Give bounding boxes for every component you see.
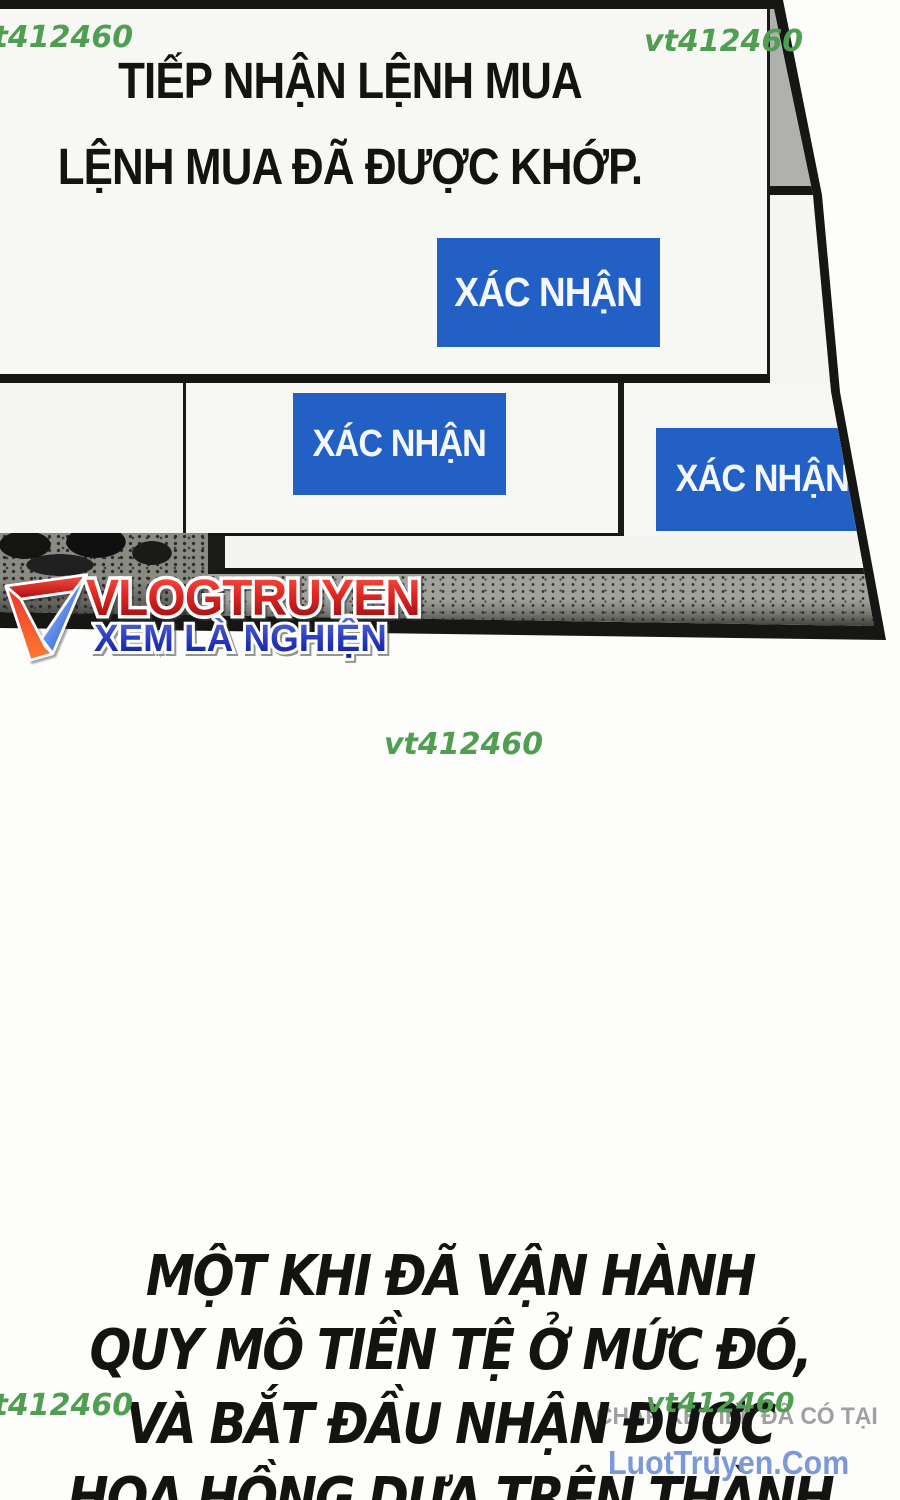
confirm-button-2-label: XÁC NHẬN [313, 423, 486, 466]
confirm-button-2[interactable]: XÁC NHẬN [293, 393, 506, 495]
narration-line: MỘT KHI ĐÃ VẬN HÀNH [54, 1240, 846, 1314]
vlogtruyen-triangle-icon [2, 570, 96, 666]
dialog-title-line2: LỆNH MUA ĐÃ ĐƯỢC KHỚP. [49, 137, 651, 196]
site-logo: VLOGTRUYEN VLOGTRUYEN XEM LÀ NGHIỆN XEM … [2, 566, 432, 670]
confirm-button-1-label: XÁC NHẬN [455, 269, 643, 316]
panel-background: TIẾP NHẬN LỆNH MUA LỆNH MUA ĐÃ ĐƯỢC KHỚP… [0, 0, 900, 660]
narration-line: QUY MÔ TIỀN TỆ Ở MỨC ĐÓ, [54, 1314, 846, 1388]
watermark-bottom-right: vt412460 [646, 1386, 795, 1419]
dialog-popup-front: TIẾP NHẬN LỆNH MUA LỆNH MUA ĐÃ ĐƯỢC KHỚP… [0, 9, 770, 383]
gray-wedge-edge [768, 186, 818, 195]
site-logo-tagline: XEM LÀ NGHIỆN XEM LÀ NGHIỆN [94, 618, 387, 661]
watermark-top-left: vt412460 [0, 20, 133, 55]
comic-panel: TIẾP NHẬN LỆNH MUA LỆNH MUA ĐÃ ĐƯỢC KHỚP… [0, 0, 900, 660]
confirm-button-3[interactable]: XÁC NHẬN [656, 428, 869, 531]
dialog-title-line1: TIẾP NHẬN LỆNH MUA [49, 51, 651, 110]
watermark-middle: vt412460 [384, 727, 543, 762]
confirm-button-1[interactable]: XÁC NHẬN [437, 238, 660, 347]
watermark-top-right: vt412460 [644, 24, 803, 59]
dialog-popup-middle: XÁC NHẬN [183, 383, 621, 539]
confirm-button-3-label: XÁC NHẬN [676, 458, 849, 501]
comic-page: TIẾP NHẬN LỆNH MUA LỆNH MUA ĐÃ ĐƯỢC KHỚP… [0, 0, 900, 1500]
promo-site-link[interactable]: LuotTruyen.Com [608, 1444, 849, 1482]
watermark-bottom-left: vt412460 [0, 1388, 133, 1423]
